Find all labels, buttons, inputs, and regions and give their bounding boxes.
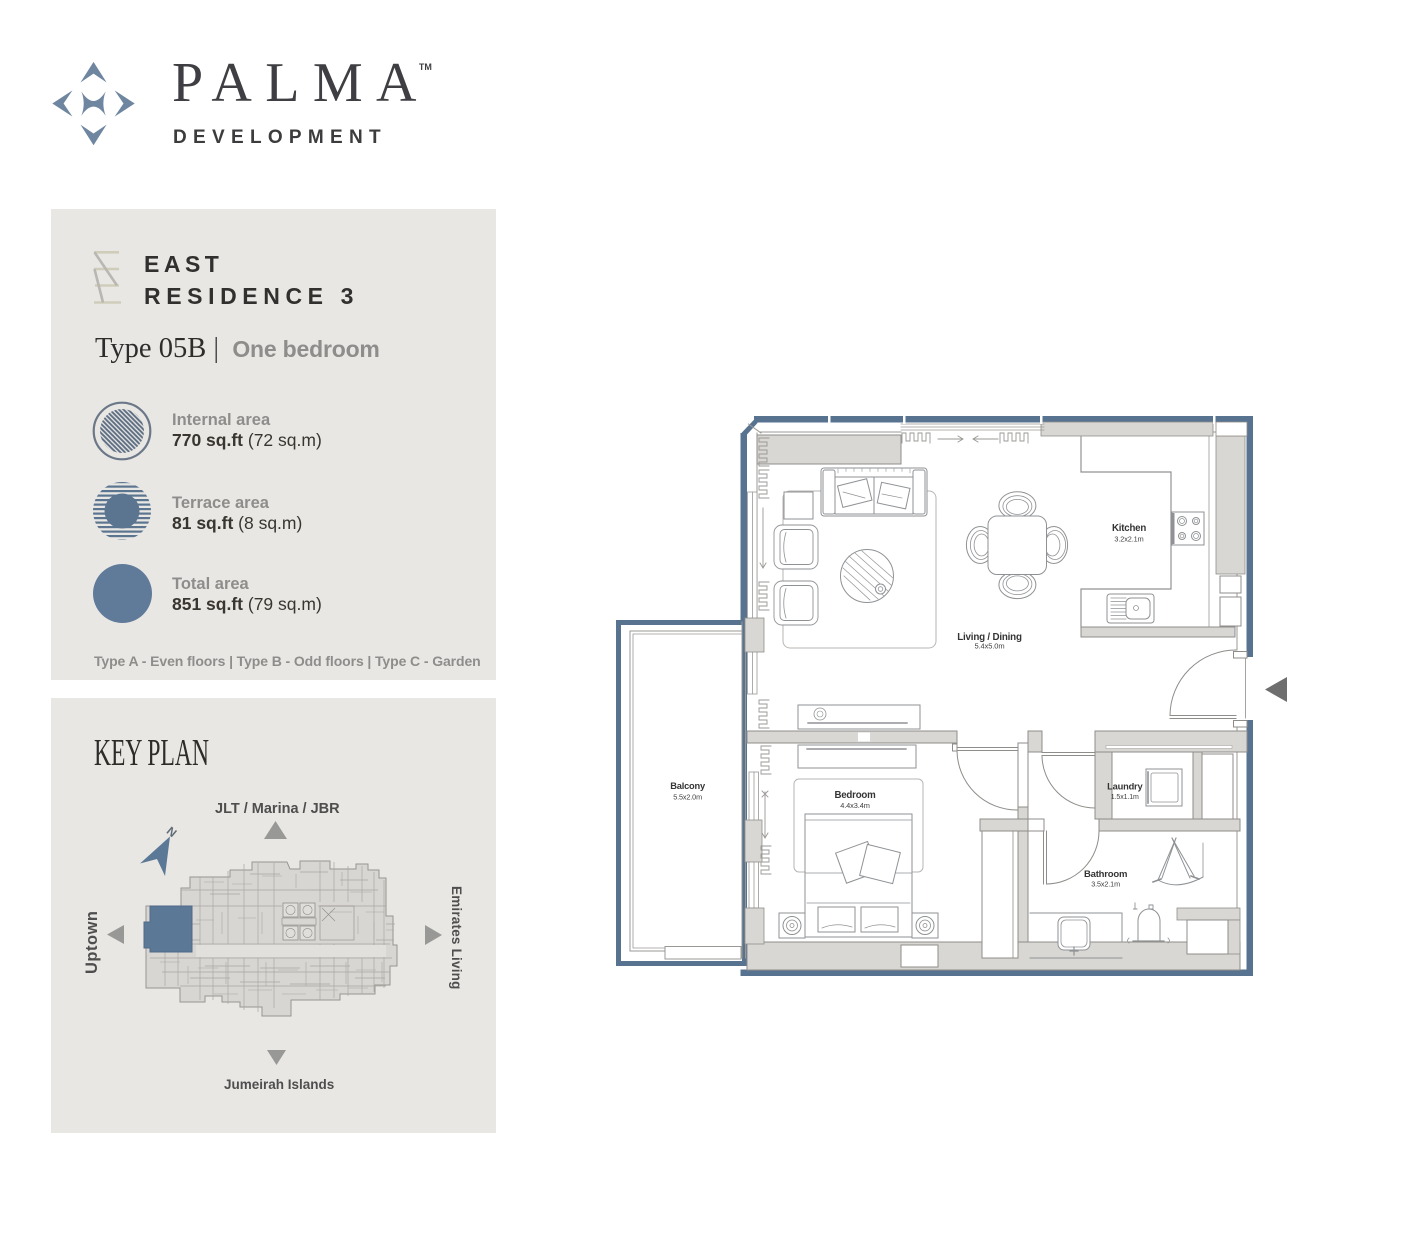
svg-text:3.5x2.1m: 3.5x2.1m bbox=[1091, 880, 1120, 889]
svg-text:N: N bbox=[164, 824, 180, 840]
svg-text:3.2x2.1m: 3.2x2.1m bbox=[1114, 535, 1143, 544]
svg-text:5.5x2.0m: 5.5x2.0m bbox=[673, 793, 702, 802]
svg-text:5.4x5.0m: 5.4x5.0m bbox=[974, 642, 1004, 651]
svg-text:Bedroom: Bedroom bbox=[834, 790, 876, 801]
svg-text:1.5x1.1m: 1.5x1.1m bbox=[1111, 794, 1139, 801]
svg-text:Laundry: Laundry bbox=[1107, 782, 1143, 792]
svg-text:Balcony: Balcony bbox=[670, 781, 706, 791]
svg-text:4.4x3.4m: 4.4x3.4m bbox=[840, 801, 870, 810]
svg-text:Bathroom: Bathroom bbox=[1084, 869, 1127, 880]
svg-text:Kitchen: Kitchen bbox=[1112, 523, 1146, 534]
